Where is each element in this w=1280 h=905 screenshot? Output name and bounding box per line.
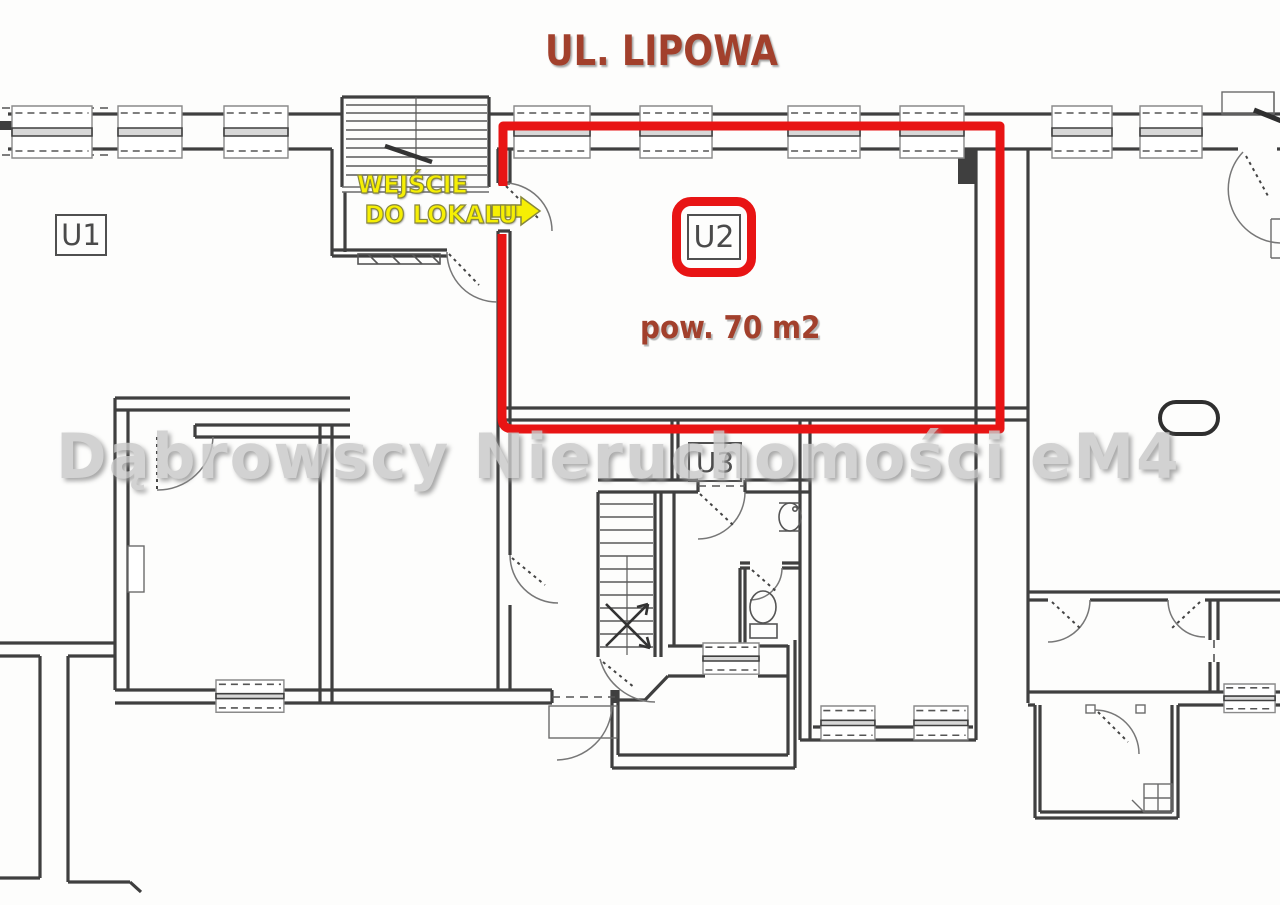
sink-icon <box>779 503 801 531</box>
walls <box>0 97 1280 892</box>
street-name-label: UL. LIPOWA <box>545 26 778 75</box>
door-leaf-solid <box>1254 110 1280 122</box>
unit-u2-label: U2 <box>687 214 741 260</box>
entrance-label: WEJŚCIE DO LOKALU <box>357 170 518 230</box>
toilet-icon <box>750 591 777 638</box>
unit-u1-label: U1 <box>55 214 107 256</box>
unit-u2-text: U2 <box>693 220 734 255</box>
agency-watermark: Dąbrowscy Nieruchomości eM4 <box>56 420 1181 493</box>
staircase-down <box>600 504 653 655</box>
floorplan-page: UL. LIPOWA WEJŚCIE DO LOKALU U1 U2 U3 po… <box>0 0 1280 905</box>
entrance-label-line1: WEJŚCIE <box>357 170 518 200</box>
unit-boundary-highlight <box>502 126 1000 429</box>
unit-u1-text: U1 <box>61 218 101 252</box>
entrance-label-line2: DO LOKALU <box>365 200 518 230</box>
unit-u2-badge: U2 <box>672 197 756 277</box>
unit-area-label: pow. 70 m2 <box>640 310 820 346</box>
